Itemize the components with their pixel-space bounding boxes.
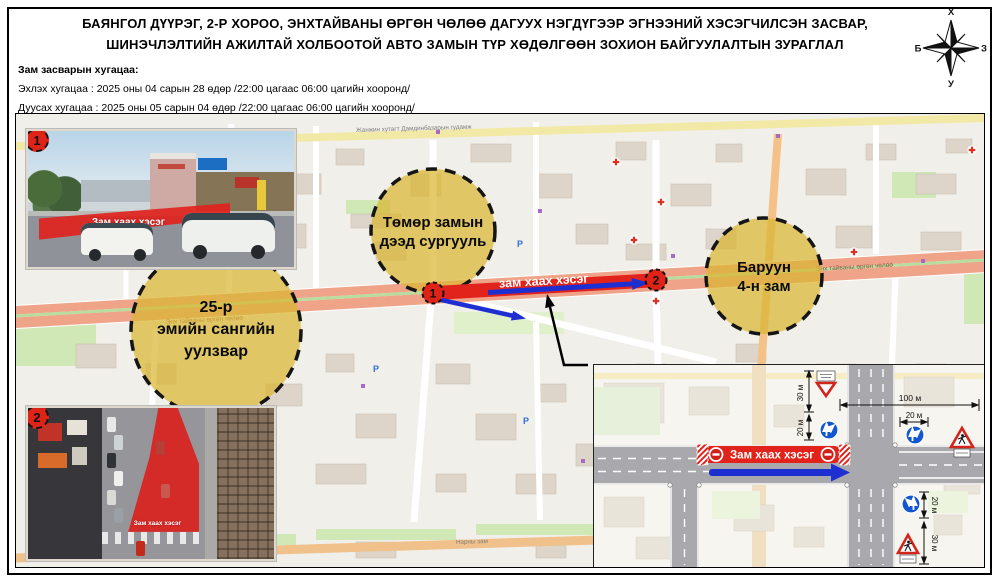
svg-text:P: P [373, 364, 379, 374]
compass-south-label: У [948, 79, 954, 90]
svg-text:1: 1 [430, 287, 437, 301]
photo1-billboard-blue [198, 158, 227, 170]
title-line-2: ШИНЭЧЛЭЛТИЙН АЖИЛТАЙ ХОЛБООТОЙ АВТО ЗАМЫ… [60, 35, 890, 56]
compass-north-label: Х [948, 7, 955, 18]
street-label-naran-2: Нарны зам [456, 538, 488, 546]
svg-text:P: P [517, 239, 523, 249]
intersection-diagram: Зам хаах хэсэг [593, 364, 985, 568]
svg-text:30 м: 30 м [796, 385, 805, 402]
compass-east-label: З [981, 44, 987, 55]
photo2-billboard-4 [72, 447, 87, 465]
photo2-sidewalk [205, 408, 217, 559]
photo2-crosswalk [102, 532, 205, 544]
photo2-queue-car-5 [107, 490, 116, 505]
photo1-building-sign-red [158, 164, 185, 169]
diagram-closure-label: Зам хаах хэсэг [730, 450, 814, 462]
schedule-start: Эхлэх хугацаа : 2025 оны 04 сарын 28 өдө… [18, 83, 415, 95]
traffic-plan-poster: БАЯНГОЛ ДҮҮРЭГ, 2-Р ХОРОО, ЭНХТАЙВАНЫ ӨР… [0, 0, 1000, 582]
photo-aerial-view: Зам хаах хэсэг 2 [26, 406, 276, 561]
highlight-circle-west4: Баруун 4-н зам [706, 218, 822, 334]
map-marker-2: 2 [646, 270, 667, 291]
circle2-line1: Төмөр замын [383, 214, 483, 231]
svg-text:20 м: 20 м [906, 411, 923, 420]
photo2-billboard-3 [38, 453, 68, 468]
compass-rose-icon: Х У З Б [914, 4, 988, 90]
svg-text:20 м: 20 м [930, 497, 939, 514]
mandatory-direction-sign-bottom [902, 495, 920, 513]
photo2-queue-car-6 [114, 508, 123, 523]
svg-text:20 м: 20 м [796, 420, 805, 437]
photo2-queue-car-3 [107, 453, 116, 468]
svg-text:100 м: 100 м [899, 393, 922, 403]
circle3-line1: Баруун [737, 259, 791, 276]
photo2-building-right [217, 408, 274, 559]
circle2-line2: дээд сургууль [380, 233, 487, 250]
mandatory-direction-sign-top [906, 426, 924, 444]
page-title: БАЯНГОЛ ДҮҮРЭГ, 2-Р ХОРОО, ЭНХТАЙВАНЫ ӨР… [60, 14, 890, 56]
photo2-red-car [136, 541, 145, 556]
photo2-billboard-2 [67, 420, 87, 435]
photo-street-view: Зам хаах хэсэг 1 [26, 129, 296, 269]
city-map: Энх тайваны өргөн чөлөө Энх тайваны өргө… [15, 113, 985, 568]
svg-text:P: P [523, 416, 529, 426]
svg-text:30 м: 30 м [930, 535, 939, 552]
mandatory-direction-sign-left [820, 421, 838, 439]
no-entry-icon-right [822, 448, 835, 461]
photo2-queue-car-4 [114, 471, 123, 486]
svg-text:2: 2 [653, 274, 660, 288]
schedule-block: Зам засварын хугацаа: Эхлэх хугацаа : 20… [18, 64, 415, 114]
no-entry-icon-left [710, 448, 723, 461]
photo1-skyline [81, 180, 161, 202]
diagram-closure-band: Зам хаах хэсэг [697, 444, 850, 465]
diagram-graphic: Зам хаах хэсэг [594, 365, 985, 568]
photo2-queue-car-2 [114, 435, 123, 450]
photo2-car-on-red-2 [161, 484, 170, 498]
title-line-1: БАЯНГОЛ ДҮҮРЭГ, 2-Р ХОРОО, ЭНХТАЙВАНЫ ӨР… [60, 14, 890, 35]
highlight-circle-pharmacy25: 25-р эмийн сангийн уулзвар [131, 246, 301, 416]
compass-west-label: Б [915, 44, 922, 55]
circle1-line1: 25-р [200, 299, 233, 316]
photo1-building-pink [150, 153, 195, 216]
schedule-heading: Зам засварын хугацаа: [18, 64, 415, 76]
photo2-closure-label: Зам хаах хэсэг [134, 520, 182, 527]
photo2-car-on-red-1 [156, 441, 165, 455]
circle1-line2: эмийн сангийн [157, 321, 275, 338]
map-marker-1: 1 [423, 283, 444, 304]
circle3-line2: 4-н зам [737, 278, 790, 295]
photo2-queue-car-1 [107, 417, 116, 432]
circle1-line3: уулзвар [184, 343, 248, 360]
photo1-banner-yellow [257, 180, 266, 210]
highlight-circle-railway-school: Төмөр замын дээд сургууль [371, 169, 495, 293]
